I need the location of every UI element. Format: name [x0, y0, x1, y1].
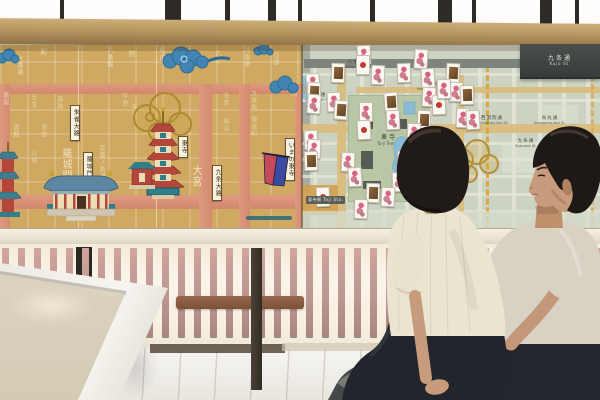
- pinned-card: [465, 110, 480, 131]
- block-tint: [502, 145, 542, 173]
- historical-map-panel: 町八条殿館相國清華六位兵庫寮信濃大膳職嘉殿壬生斎院平野平等左京九条院院酒殿朝堂花…: [0, 45, 302, 231]
- pinned-card: [407, 123, 422, 143]
- baluster: [418, 248, 425, 338]
- tan-street-kujo: [302, 124, 600, 133]
- street-sign: 九条通 Kujo St.: [520, 44, 600, 79]
- rail-line-dashed: [591, 75, 594, 231]
- sign-latin: Kujo St.: [520, 62, 600, 67]
- map-kanji-text: 信濃: [272, 52, 278, 66]
- baluster: [306, 248, 313, 338]
- map-kanji-text: 大膳職: [16, 55, 22, 76]
- handrail: [176, 296, 304, 309]
- baluster: [178, 248, 185, 338]
- sign-kanji: 九条通: [520, 53, 600, 62]
- window-sill-dark: [150, 344, 285, 353]
- block-tint: [542, 105, 578, 123]
- baluster: [274, 248, 281, 338]
- baluster: [450, 248, 457, 338]
- bench-shadow: [320, 382, 600, 400]
- pinned-card: [304, 151, 319, 171]
- pinned-card: [460, 85, 475, 105]
- map-kanji-text: 六位: [214, 50, 220, 64]
- historical-road-vertical: [0, 84, 10, 231]
- photo-scene: 町八条殿館相國清華六位兵庫寮信濃大膳職嘉殿壬生斎院平野平等左京九条院院酒殿朝堂花…: [0, 0, 600, 400]
- station-kanji: 東寺駅: [308, 197, 322, 202]
- map-kanji-text: 平等: [130, 104, 136, 118]
- pinned-card: [333, 100, 348, 121]
- rail-line-dashed: [486, 66, 489, 231]
- baluster: [482, 248, 489, 338]
- map-kanji-text: 町: [40, 48, 47, 56]
- street-line: [302, 142, 600, 145]
- baluster: [226, 248, 233, 338]
- baluster: [290, 248, 297, 338]
- map-label-box: いまの東寺: [285, 138, 295, 181]
- pinned-card: [356, 120, 371, 141]
- map-kanji-text: 八条殿: [106, 47, 112, 68]
- historical-road-vertical: [239, 84, 250, 231]
- map-kanji-text: 相國: [158, 47, 164, 61]
- pinned-card: [354, 199, 369, 219]
- baluster: [370, 248, 377, 338]
- map-kanji-text: 壬生: [30, 94, 36, 108]
- map-kanji-text: 平野: [121, 93, 127, 107]
- baluster: [546, 248, 553, 338]
- baluster: [386, 248, 393, 338]
- mural-wall: 町八条殿館相國清華六位兵庫寮信濃大膳職嘉殿壬生斎院平野平等左京九条院院酒殿朝堂花…: [0, 45, 600, 231]
- map-kanji-text: 左京: [222, 92, 228, 106]
- map-kanji-text: 御倉町: [250, 116, 256, 137]
- station-latin: Toji Sta.: [323, 197, 343, 202]
- map-kanji-text: 兵庫寮: [243, 47, 249, 68]
- pinned-card: [437, 79, 452, 99]
- map-kanji-text: 清華: [186, 49, 192, 63]
- pinned-card: [306, 94, 321, 115]
- pinned-card: [347, 167, 362, 188]
- window-sill-light: [282, 343, 387, 351]
- pinned-card: [397, 63, 412, 83]
- baluster: [466, 248, 473, 338]
- map-kanji-text: 斎院: [56, 96, 62, 110]
- pinned-card: [397, 151, 412, 171]
- baluster: [338, 248, 345, 338]
- pinned-card: [371, 65, 386, 85]
- tan-street-vertical: [337, 63, 346, 231]
- map-kanji-text: 朝堂: [40, 124, 46, 138]
- map-label-box: 羅城門: [83, 152, 93, 181]
- baluster: [322, 248, 329, 338]
- pinned-card: [356, 55, 370, 75]
- historical-road-omiya: [199, 84, 212, 231]
- railing-post: [251, 248, 262, 390]
- map-kanji-text: 納言: [222, 118, 228, 132]
- map-kanji-text: 酒殿: [12, 124, 18, 138]
- pinned-card: [386, 110, 401, 130]
- baluster: [354, 248, 361, 338]
- baluster: [594, 248, 600, 338]
- pinned-card: [380, 187, 395, 208]
- map-kanji-text: 館: [128, 50, 135, 58]
- panel-seam: [301, 45, 303, 231]
- baluster: [434, 248, 441, 338]
- map-label-box: 東寺: [178, 136, 188, 158]
- baluster: [562, 248, 569, 338]
- map-kanji-text: 花薗ノ馬場: [98, 145, 104, 180]
- baluster: [402, 248, 409, 338]
- baluster: [242, 248, 249, 338]
- baluster: [530, 248, 537, 338]
- map-label-box: 九条大路: [212, 165, 222, 201]
- map-label-box: 朱雀大路: [70, 105, 80, 141]
- hanging-wire: [156, 45, 157, 231]
- pinned-card: [423, 131, 438, 152]
- pinned-card: [331, 63, 346, 83]
- baluster: [210, 248, 217, 338]
- map-kanji-text: 羅城門: [60, 148, 70, 181]
- street-line: [302, 175, 600, 178]
- historical-road-kujo: [0, 195, 302, 209]
- temple-building: [361, 151, 373, 169]
- baluster: [194, 248, 201, 338]
- pinned-card: [420, 68, 435, 89]
- map-kanji-text: 針: [128, 168, 134, 175]
- baluster: [498, 248, 505, 338]
- historical-road-horizontal: [0, 84, 302, 94]
- map-kanji-text: 斗帳: [30, 150, 36, 164]
- baluster: [578, 248, 585, 338]
- pinned-card: [413, 49, 428, 70]
- station-label-chip: 東寺駅 Toji Sta.: [306, 196, 345, 204]
- baluster: [514, 248, 521, 338]
